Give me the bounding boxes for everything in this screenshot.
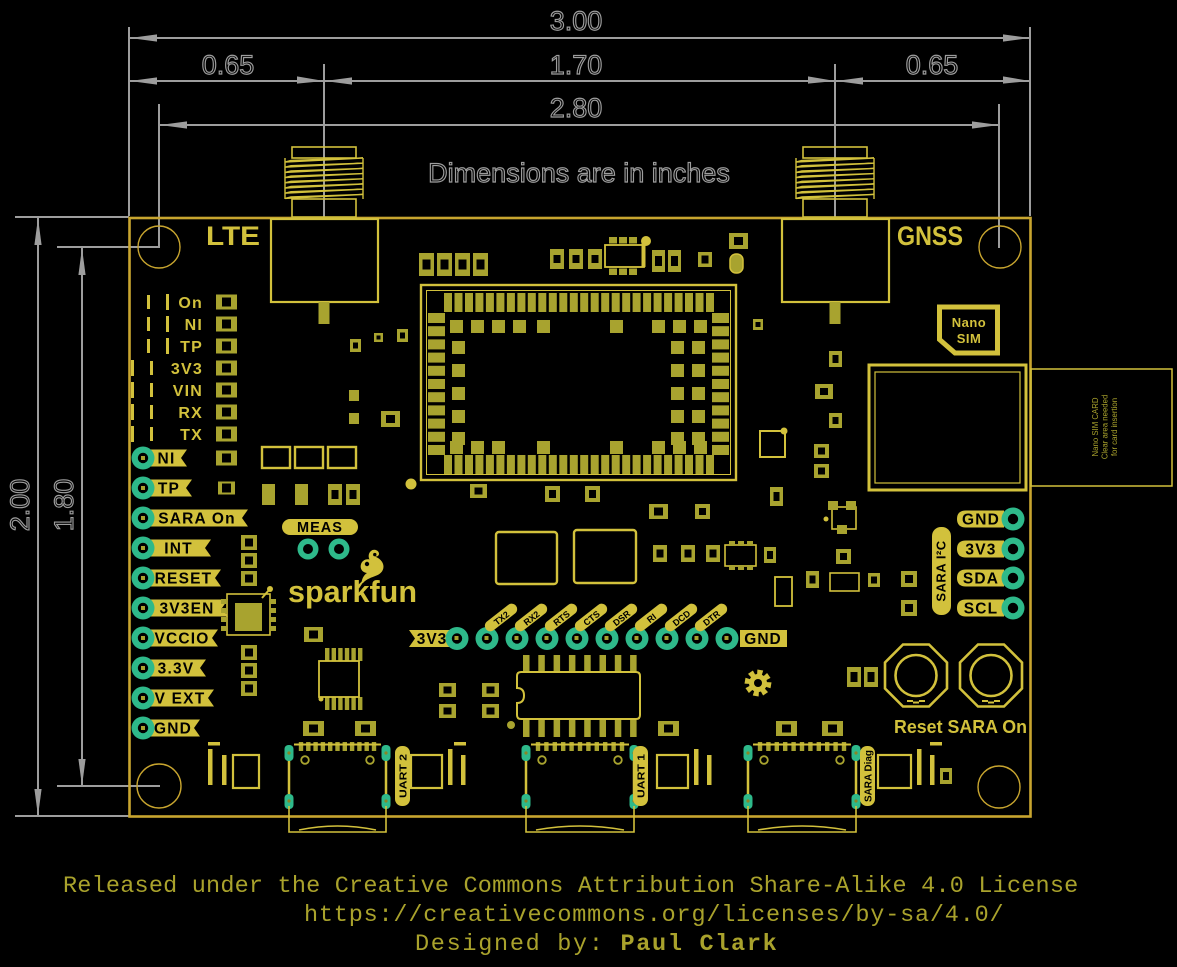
svg-text:1.80: 1.80 <box>49 479 79 532</box>
svg-text:1.70: 1.70 <box>550 50 603 80</box>
svg-text:TX: TX <box>180 427 203 444</box>
svg-text:INT: INT <box>164 541 193 558</box>
svg-text:3V3: 3V3 <box>965 542 996 559</box>
svg-text:2.80: 2.80 <box>550 93 603 123</box>
svg-text:SARA On: SARA On <box>158 511 236 528</box>
svg-text:GND: GND <box>962 512 1000 529</box>
svg-text:On: On <box>178 295 203 312</box>
svg-text:3V3: 3V3 <box>171 361 203 378</box>
svg-text:GNSS: GNSS <box>897 221 963 251</box>
svg-text:SDA: SDA <box>963 571 999 588</box>
svg-text:NI: NI <box>158 451 176 468</box>
svg-text:SIM: SIM <box>957 331 982 346</box>
svg-text:0.65: 0.65 <box>202 50 255 80</box>
svg-text:https://creativecommons.org/li: https://creativecommons.org/licenses/by-… <box>304 902 1004 929</box>
svg-text:GND: GND <box>154 721 192 738</box>
svg-text:SARA Diag: SARA Diag <box>863 750 875 802</box>
svg-text:GND: GND <box>744 631 781 648</box>
svg-text:UART 2: UART 2 <box>398 754 410 798</box>
svg-text:3V3EN: 3V3EN <box>159 601 214 618</box>
svg-text:TP: TP <box>180 339 203 356</box>
svg-text:RESET: RESET <box>155 571 213 588</box>
svg-text:MEAS: MEAS <box>297 520 343 536</box>
svg-text:Released under the Creative Co: Released under the Creative Commons Attr… <box>63 873 1078 900</box>
svg-text:3.3V: 3.3V <box>158 661 195 678</box>
svg-text:Nano SIM CARD: Nano SIM CARD <box>1091 397 1100 456</box>
svg-text:SCL: SCL <box>964 601 999 618</box>
svg-text:3.00: 3.00 <box>550 6 603 36</box>
svg-text:V EXT: V EXT <box>155 691 206 708</box>
svg-text:2.00: 2.00 <box>5 479 35 532</box>
svg-text:VIN: VIN <box>173 383 203 400</box>
svg-text:Reset SARA On: Reset SARA On <box>894 717 1027 737</box>
svg-text:TP: TP <box>158 481 180 498</box>
svg-text:LTE: LTE <box>206 221 260 251</box>
svg-text:sparkfun: sparkfun <box>288 574 417 609</box>
svg-text:Nano: Nano <box>952 315 987 330</box>
svg-text:Clear area needed: Clear area needed <box>1101 395 1110 460</box>
svg-text:for card insertion: for card insertion <box>1110 398 1119 456</box>
svg-text:Dimensions are in inches: Dimensions are in inches <box>428 158 730 188</box>
svg-text:VCCIO: VCCIO <box>154 631 209 648</box>
svg-text:RX: RX <box>178 405 203 422</box>
svg-text:3V3: 3V3 <box>417 631 448 648</box>
svg-text:NI: NI <box>185 317 203 334</box>
svg-text:SARA I²C: SARA I²C <box>934 540 949 601</box>
svg-text:UART 1: UART 1 <box>636 754 648 798</box>
svg-text:Designed by: Paul Clark: Designed by: Paul Clark <box>415 931 778 958</box>
svg-text:0.65: 0.65 <box>906 50 959 80</box>
